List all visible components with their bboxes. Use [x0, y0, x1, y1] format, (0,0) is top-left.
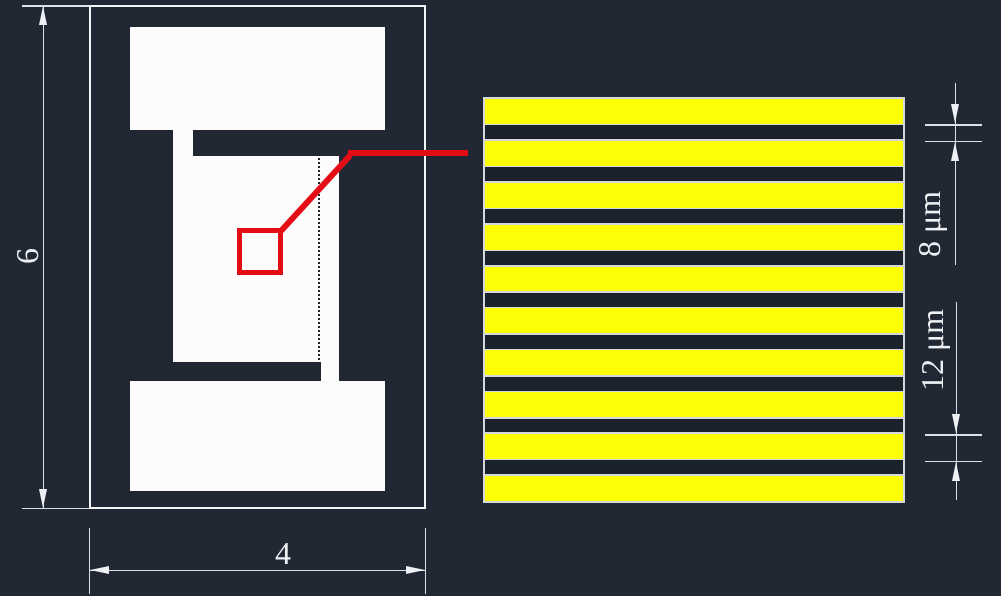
dark-stripe[interactable] — [485, 125, 903, 139]
arrow-up-icon — [952, 462, 960, 481]
dark-stripe[interactable] — [485, 419, 903, 433]
dark-stripe[interactable] — [485, 251, 903, 265]
dark-stripe[interactable] — [485, 460, 903, 474]
yellow-stripe[interactable] — [485, 183, 903, 208]
extension-line-bottom — [22, 508, 89, 510]
yellow-stripe[interactable] — [485, 392, 903, 417]
yellow-stripe-dimension-label: 12 μm — [915, 295, 949, 405]
extension-line-left — [89, 528, 91, 594]
height-dimension-label: 6 — [10, 226, 44, 286]
dark-stripe[interactable] — [485, 209, 903, 223]
arrow-down-icon — [952, 414, 960, 433]
yellow-stripe[interactable] — [485, 99, 903, 124]
arrow-up-icon — [39, 6, 47, 25]
yellow-stripe[interactable] — [485, 225, 903, 250]
bottom-pad[interactable] — [130, 381, 385, 491]
yellow-stripe[interactable] — [485, 308, 903, 333]
top-pad[interactable] — [130, 27, 385, 130]
callout-leader-horizontal[interactable] — [348, 150, 468, 156]
detail-callout-box[interactable] — [237, 228, 283, 275]
arrow-right-icon — [406, 566, 425, 574]
arrow-left-icon — [90, 566, 109, 574]
yellow-stripe[interactable] — [485, 434, 903, 459]
dark-stripe[interactable] — [485, 167, 903, 181]
arrow-down-icon — [951, 104, 959, 123]
dark-stripe[interactable] — [485, 293, 903, 307]
yellow-stripe[interactable] — [485, 141, 903, 166]
yellow-stripe[interactable] — [485, 267, 903, 292]
extension-line-top — [22, 5, 89, 7]
connecting-stem[interactable] — [173, 130, 193, 157]
lower-beam[interactable] — [321, 361, 339, 382]
grating-detail[interactable] — [483, 97, 905, 503]
width-dimension-label: 4 — [253, 536, 313, 570]
yellow-stripe[interactable] — [485, 476, 903, 501]
dark-stripe[interactable] — [485, 377, 903, 391]
yellow-stripe[interactable] — [485, 350, 903, 375]
dark-stripe[interactable] — [485, 335, 903, 349]
dark-stripe-dimension-label: 8 μm — [912, 179, 946, 269]
extension-line-upper — [925, 124, 982, 126]
arrow-down-icon — [39, 489, 47, 508]
cad-canvas: 6 4 8 μm 12 μm — [0, 0, 1001, 596]
extension-line-upper — [925, 434, 982, 436]
extension-line-right — [425, 528, 427, 594]
arrow-up-icon — [951, 142, 959, 161]
